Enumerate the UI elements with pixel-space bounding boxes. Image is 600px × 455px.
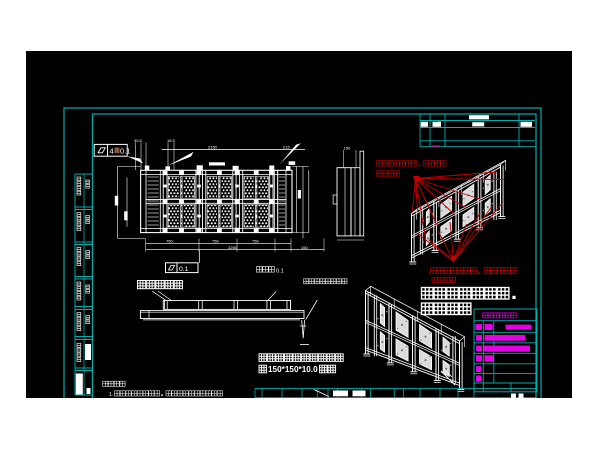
svg-text:150*150*10.0: 150*150*10.0 — [268, 365, 318, 374]
svg-text:750: 750 — [166, 239, 173, 244]
svg-text:2150: 2150 — [208, 145, 218, 150]
svg-text:150: 150 — [344, 146, 351, 151]
svg-text::: : — [125, 382, 126, 388]
svg-text:30.5: 30.5 — [134, 138, 143, 143]
svg-text:0.1: 0.1 — [179, 266, 189, 273]
svg-text:0.1: 0.1 — [276, 268, 284, 274]
svg-text:150: 150 — [301, 245, 308, 250]
svg-text:4: 4 — [110, 147, 114, 156]
svg-text:750: 750 — [212, 239, 219, 244]
svg-text:16.5: 16.5 — [167, 138, 176, 143]
svg-text:215: 215 — [283, 145, 290, 150]
svg-text:750: 750 — [252, 239, 259, 244]
svg-text:2250: 2250 — [228, 245, 238, 250]
svg-text:0.1: 0.1 — [120, 147, 130, 156]
svg-text:1.: 1. — [109, 392, 113, 398]
